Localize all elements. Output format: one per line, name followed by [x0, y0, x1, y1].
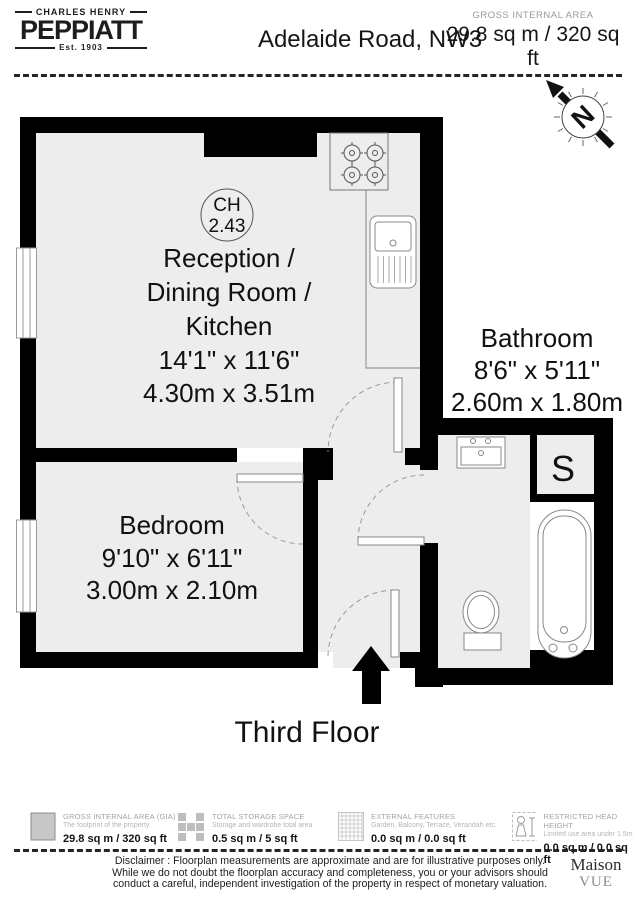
bathroom-size-metric: 2.60m x 1.80m [451, 387, 623, 417]
floor-level-label: Third Floor [234, 716, 379, 749]
maison-vue-logo: Maison VUE [560, 855, 632, 891]
window-icon-left-bedroom [17, 520, 37, 612]
legend-value: 0.5 sq m / 5 sq ft [212, 833, 312, 845]
reception-size-imperial: 14'1" x 11'6" [159, 345, 300, 375]
disclaimer-line-1: Disclaimer : Floorplan measurements are … [100, 856, 560, 868]
maison-logo-line-1: Maison [560, 855, 632, 875]
reception-name-1: Reception / [163, 243, 295, 273]
legend-value: 29.8 sq m / 320 sq ft [63, 833, 176, 845]
compass-icon: N [546, 80, 612, 146]
floorplan-page: CHARLES HENRY PEPPIATT Est. 1903 Adelaid… [0, 0, 636, 900]
kitchen-sink-icon [370, 216, 416, 288]
legend-name: GROSS INTERNAL AREA (GIA) [63, 812, 176, 821]
window-icon-left-reception [17, 248, 37, 338]
disclaimer-line-3: conduct a careful, independent investiga… [100, 879, 560, 891]
footer-divider [14, 849, 622, 852]
disclaimer-text: Disclaimer : Floorplan measurements are … [100, 856, 560, 891]
ceiling-height-badge: CH 2.43 [201, 189, 253, 241]
bedroom-size-metric: 3.00m x 2.10m [86, 575, 258, 605]
reception-size-metric: 4.30m x 3.51m [143, 378, 315, 408]
bedroom-name: Bedroom [119, 510, 225, 540]
toilet-icon [463, 591, 501, 650]
hatch-square-icon [338, 812, 364, 841]
person-icon [512, 812, 537, 841]
bedroom-size-imperial: 9'10" x 6'11" [102, 543, 243, 573]
legend-item-external: EXTERNAL FEATURES Garden, Balcony, Terra… [338, 812, 497, 845]
solid-square-icon [30, 812, 56, 841]
bathroom-labels: Bathroom 8'6" x 5'11" 2.60m x 1.80m [451, 323, 623, 417]
legend-name: TOTAL STORAGE SPACE [212, 812, 312, 821]
legend-desc: Limited use area under 1.5m [544, 831, 636, 838]
ch-value: 2.43 [209, 216, 246, 237]
bathroom-name: Bathroom [481, 323, 594, 353]
reception-name-3: Kitchen [186, 311, 273, 341]
legend-item-gia: GROSS INTERNAL AREA (GIA) The footprint … [30, 812, 176, 845]
ch-label: CH [213, 195, 240, 216]
legend-name: RESTRICTED HEAD HEIGHT [544, 812, 636, 830]
floorplan-drawing: N CH 2.43 Reception / Dining Room / Kitc… [0, 0, 636, 900]
stove-icon [330, 133, 388, 190]
legend-desc: The footprint of the property [63, 822, 176, 829]
hallway-floor [318, 462, 420, 652]
reception-name-2: Dining Room / [147, 277, 313, 307]
maison-logo-line-2: VUE [560, 874, 632, 891]
bathtub-icon [538, 510, 591, 658]
bathroom-sink-icon [457, 437, 505, 468]
legend-desc: Storage and wardrobe total area [212, 822, 312, 829]
legend-value: 0.0 sq m / 0.0 sq ft [371, 833, 497, 845]
bathroom-size-imperial: 8'6" x 5'11" [474, 355, 600, 385]
legend-desc: Garden, Balcony, Terrace, Verandah etc. [371, 822, 497, 829]
legend-name: EXTERNAL FEATURES [371, 812, 497, 821]
storage-label: S [551, 448, 575, 489]
storage-blocks-icon [178, 812, 205, 841]
legend-item-storage: TOTAL STORAGE SPACE Storage and wardrobe… [178, 812, 312, 845]
